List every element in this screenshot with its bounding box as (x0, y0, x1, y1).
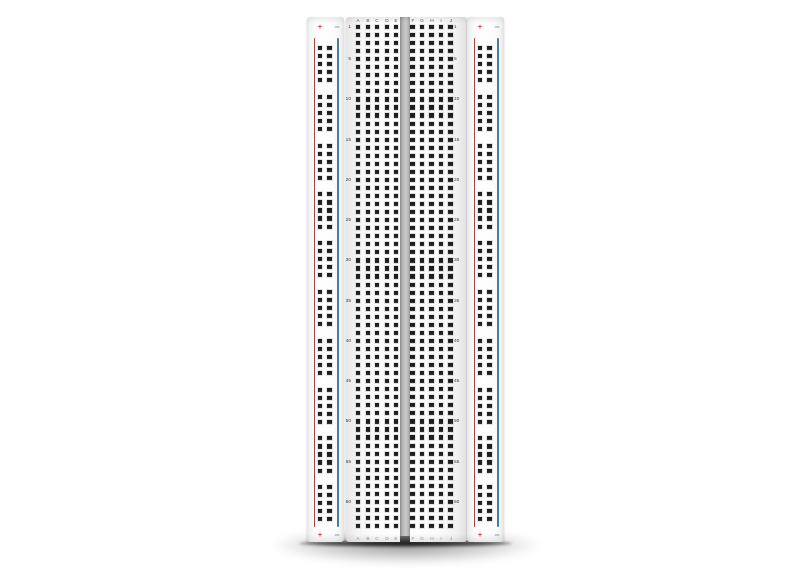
power-rail-hole (487, 436, 491, 440)
tie-point-hole (429, 154, 433, 158)
tie-point-hole (410, 234, 414, 238)
tie-point-hole (420, 57, 424, 61)
tie-point-hole (410, 146, 414, 150)
tie-point-hole (385, 105, 389, 109)
tie-point-hole (429, 41, 433, 45)
power-rail-hole (478, 420, 482, 424)
tie-point-hole (439, 363, 443, 367)
power-rail-hole (487, 70, 491, 74)
tie-point-hole (439, 154, 443, 158)
tie-point-hole (394, 476, 398, 480)
tie-point-hole (356, 65, 360, 69)
tie-point-hole (356, 315, 360, 319)
tie-point-hole (420, 307, 424, 311)
row-number-label: 40 (339, 338, 351, 344)
tie-point-hole (429, 105, 433, 109)
tie-point-hole (448, 347, 452, 351)
tie-point-hole (356, 355, 360, 359)
tie-point-hole (429, 210, 433, 214)
column-letter-label: G (418, 18, 425, 24)
tie-point-hole (410, 274, 414, 278)
power-rail-hole (327, 509, 331, 513)
tie-point-hole (429, 355, 433, 359)
tie-point-hole (356, 452, 360, 456)
tie-point-hole (429, 484, 433, 488)
column-letter-label: A (354, 536, 361, 542)
power-rail-hole (478, 257, 482, 261)
power-rail-hole (327, 290, 331, 294)
tie-point-hole (366, 387, 370, 391)
tie-point-hole (439, 49, 443, 53)
tie-point-hole (385, 323, 389, 327)
tie-point-hole (420, 339, 424, 343)
tie-point-hole (356, 186, 360, 190)
tie-point-hole (366, 468, 370, 472)
tie-point-hole (375, 57, 379, 61)
tie-point-hole (385, 516, 389, 520)
power-rail-hole (318, 517, 322, 521)
tie-point-hole (356, 113, 360, 117)
power-rail-hole (327, 485, 331, 489)
tie-point-hole (385, 57, 389, 61)
tie-point-hole (429, 524, 433, 528)
tie-point-hole (429, 460, 433, 464)
tie-point-hole (394, 524, 398, 528)
power-rail-hole (478, 144, 482, 148)
tie-point-hole (394, 395, 398, 399)
power-rail-hole (318, 160, 322, 164)
tie-point-hole (394, 170, 398, 174)
tie-point-hole (394, 444, 398, 448)
tie-point-hole (420, 234, 424, 238)
tie-point-hole (420, 411, 424, 415)
power-rail-hole (487, 355, 491, 359)
tie-point-hole (375, 476, 379, 480)
tie-point-hole (366, 250, 370, 254)
tie-point-hole (420, 444, 424, 448)
negative-sign-icon: − (491, 531, 502, 539)
tie-point-hole (375, 379, 379, 383)
positive-sign-icon: + (314, 531, 325, 539)
tie-point-hole (448, 226, 452, 230)
tie-point-hole (410, 508, 414, 512)
tie-point-hole (385, 97, 389, 101)
tie-point-hole (356, 242, 360, 246)
tie-point-hole (429, 492, 433, 496)
tie-point-hole (429, 363, 433, 367)
power-rail-hole (318, 111, 322, 115)
tie-point-hole (439, 242, 443, 246)
tie-point-hole (356, 307, 360, 311)
tie-point-hole (429, 57, 433, 61)
tie-point-hole (356, 347, 360, 351)
row-number-label: 40 (454, 338, 466, 344)
tie-point-hole (394, 347, 398, 351)
tie-point-hole (394, 250, 398, 254)
power-rail-hole (327, 420, 331, 424)
tie-point-hole (448, 105, 452, 109)
tie-point-hole (375, 492, 379, 496)
tie-point-hole (356, 363, 360, 367)
power-rail-hole (487, 339, 491, 343)
power-rail-hole (318, 152, 322, 156)
tie-point-hole (356, 258, 360, 262)
tie-point-hole (356, 484, 360, 488)
power-rail-hole (487, 306, 491, 310)
negative-sign-icon: − (491, 23, 502, 31)
row-number-label: 45 (454, 378, 466, 384)
power-rail-hole (487, 444, 491, 448)
power-rail-hole (487, 241, 491, 245)
tie-point-hole (394, 492, 398, 496)
tie-point-hole (429, 258, 433, 262)
tie-point-hole (375, 194, 379, 198)
tie-point-hole (429, 113, 433, 117)
power-rail-hole (318, 119, 322, 123)
tie-point-hole (394, 379, 398, 383)
tie-point-hole (356, 97, 360, 101)
tie-point-hole (420, 162, 424, 166)
tie-point-hole (420, 89, 424, 93)
tie-point-hole (420, 468, 424, 472)
tie-point-hole (366, 516, 370, 520)
power-rail-hole (478, 46, 482, 50)
tie-point-hole (448, 468, 452, 472)
power-rail-hole (327, 225, 331, 229)
tie-point-hole (366, 323, 370, 327)
tie-point-hole (375, 283, 379, 287)
tie-point-hole (356, 33, 360, 37)
power-rail-hole (478, 192, 482, 196)
tie-point-hole (410, 226, 414, 230)
power-rail-hole (478, 249, 482, 253)
row-number-label: 60 (454, 499, 466, 505)
tie-point-hole (448, 81, 452, 85)
tie-point-hole (394, 138, 398, 142)
tie-point-hole (448, 379, 452, 383)
power-rail-hole (318, 420, 322, 424)
power-rail-hole (327, 54, 331, 58)
tie-point-hole (448, 508, 452, 512)
tie-point-hole (394, 331, 398, 335)
power-rail-hole (487, 249, 491, 253)
tie-point-hole (366, 258, 370, 262)
tie-point-hole (420, 363, 424, 367)
tie-point-hole (366, 444, 370, 448)
tie-point-hole (385, 81, 389, 85)
power-rail-hole (327, 168, 331, 172)
column-letter-label: E (393, 536, 400, 542)
tie-point-hole (394, 460, 398, 464)
tie-point-hole (366, 524, 370, 528)
tie-point-hole (394, 323, 398, 327)
tie-point-hole (356, 492, 360, 496)
tie-point-hole (420, 323, 424, 327)
tie-point-hole (420, 81, 424, 85)
tie-point-hole (385, 162, 389, 166)
tie-point-hole (385, 210, 389, 214)
tie-point-hole (429, 202, 433, 206)
power-rail-hole (478, 95, 482, 99)
tie-point-hole (410, 186, 414, 190)
tie-point-hole (366, 508, 370, 512)
power-rail-hole (478, 412, 482, 416)
tie-point-hole (448, 258, 452, 262)
tie-point-hole (439, 210, 443, 214)
tie-point-hole (410, 81, 414, 85)
tie-point-hole (420, 105, 424, 109)
power-rail-hole (318, 298, 322, 302)
tie-point-hole (385, 468, 389, 472)
power-rail-hole (478, 371, 482, 375)
tie-point-hole (366, 178, 370, 182)
tie-point-hole (448, 444, 452, 448)
tie-point-hole (439, 299, 443, 303)
column-letter-label: D (383, 18, 390, 24)
tie-point-hole (356, 387, 360, 391)
tie-point-hole (448, 371, 452, 375)
power-rail-hole (478, 127, 482, 131)
power-rail-hole (487, 152, 491, 156)
tie-point-hole (429, 307, 433, 311)
tie-point-hole (375, 427, 379, 431)
tie-point-hole (394, 162, 398, 166)
tie-point-hole (385, 355, 389, 359)
power-rail-hole (318, 225, 322, 229)
tie-point-hole (366, 283, 370, 287)
tie-point-hole (385, 315, 389, 319)
tie-point-hole (439, 250, 443, 254)
column-letter-label: B (364, 18, 371, 24)
power-rail-hole (478, 152, 482, 156)
tie-point-hole (429, 73, 433, 77)
tie-point-hole (366, 355, 370, 359)
tie-point-hole (410, 323, 414, 327)
tie-point-hole (420, 242, 424, 246)
tie-point-hole (385, 387, 389, 391)
tie-point-hole (385, 170, 389, 174)
tie-point-hole (439, 65, 443, 69)
power-rail-hole (478, 160, 482, 164)
tie-point-hole (394, 242, 398, 246)
row-number-label: 35 (454, 298, 466, 304)
power-rail-hole (327, 257, 331, 261)
tie-point-hole (448, 387, 452, 391)
tie-point-hole (385, 154, 389, 158)
tie-point-hole (366, 97, 370, 101)
tie-point-hole (448, 476, 452, 480)
tie-point-hole (366, 194, 370, 198)
tie-point-hole (439, 274, 443, 278)
tie-point-hole (448, 492, 452, 496)
tie-point-hole (394, 516, 398, 520)
tie-point-hole (410, 210, 414, 214)
tie-point-hole (448, 146, 452, 150)
tie-point-hole (394, 234, 398, 238)
tie-point-hole (385, 427, 389, 431)
tie-point-hole (410, 194, 414, 198)
power-rail-hole (318, 144, 322, 148)
tie-point-hole (410, 122, 414, 126)
power-rail-hole (478, 298, 482, 302)
power-rail-hole (487, 168, 491, 172)
power-rail-hole (327, 396, 331, 400)
power-rail-hole (487, 363, 491, 367)
tie-point-hole (429, 427, 433, 431)
tie-point-hole (385, 435, 389, 439)
tie-point-hole (439, 323, 443, 327)
tie-point-hole (439, 41, 443, 45)
row-number-label: 15 (339, 137, 351, 143)
tie-point-hole (410, 178, 414, 182)
tie-point-hole (410, 355, 414, 359)
tie-point-hole (375, 508, 379, 512)
tie-point-hole (410, 138, 414, 142)
tie-point-hole (420, 194, 424, 198)
tie-point-hole (366, 395, 370, 399)
power-rail-hole (318, 509, 322, 513)
tie-point-hole (356, 57, 360, 61)
column-letter-label: C (374, 536, 381, 542)
tie-point-hole (410, 242, 414, 246)
tie-point-hole (375, 524, 379, 528)
tie-point-hole (448, 25, 452, 29)
power-rail-hole (318, 460, 322, 464)
power-rail-hole (478, 168, 482, 172)
power-rail-hole (487, 298, 491, 302)
tie-point-hole (385, 460, 389, 464)
tie-point-hole (420, 65, 424, 69)
tie-point-hole (420, 395, 424, 399)
tie-point-hole (448, 162, 452, 166)
power-rail-hole (478, 396, 482, 400)
power-rail-hole (487, 452, 491, 456)
tie-point-hole (394, 186, 398, 190)
power-rail-hole (318, 78, 322, 82)
tie-point-hole (410, 57, 414, 61)
tie-point-hole (375, 323, 379, 327)
tie-point-hole (356, 154, 360, 158)
tie-point-hole (448, 395, 452, 399)
tie-point-hole (385, 339, 389, 343)
power-rail-hole (487, 257, 491, 261)
tie-point-hole (448, 250, 452, 254)
power-rail-hole (487, 347, 491, 351)
tie-point-hole (356, 234, 360, 238)
power-rail-hole (478, 111, 482, 115)
tie-point-hole (420, 113, 424, 117)
tie-point-hole (385, 274, 389, 278)
tie-point-hole (375, 387, 379, 391)
tie-point-hole (375, 218, 379, 222)
power-rail-hole (318, 216, 322, 220)
row-number-label: 1 (454, 24, 466, 30)
tie-point-hole (385, 347, 389, 351)
power-rail-hole (478, 444, 482, 448)
tie-point-hole (410, 105, 414, 109)
tie-point-hole (385, 89, 389, 93)
power-rail-hole (318, 70, 322, 74)
row-number-label: 30 (454, 257, 466, 263)
tie-point-hole (410, 89, 414, 93)
power-rail-hole (327, 363, 331, 367)
tie-point-hole (439, 387, 443, 391)
power-rail-hole (487, 216, 491, 220)
tie-point-hole (375, 435, 379, 439)
power-rail-hole (478, 176, 482, 180)
tie-point-hole (448, 130, 452, 134)
tie-point-hole (366, 130, 370, 134)
tie-point-hole (394, 122, 398, 126)
tie-point-hole (448, 355, 452, 359)
tie-point-hole (439, 500, 443, 504)
tie-point-hole (439, 226, 443, 230)
power-rail-hole (318, 265, 322, 269)
power-rail-hole (327, 404, 331, 408)
tie-point-hole (448, 138, 452, 142)
tie-point-hole (439, 371, 443, 375)
tie-point-hole (375, 331, 379, 335)
tie-point-hole (356, 49, 360, 53)
tie-point-hole (394, 484, 398, 488)
power-rail-hole (478, 322, 482, 326)
channel-end-notch (400, 536, 410, 542)
power-rail-hole (327, 62, 331, 66)
power-rail-hole (318, 322, 322, 326)
tie-point-hole (366, 331, 370, 335)
tie-point-hole (394, 307, 398, 311)
tie-point-hole (394, 218, 398, 222)
tie-point-hole (385, 379, 389, 383)
tie-point-hole (410, 283, 414, 287)
tie-point-hole (448, 516, 452, 520)
power-rail-hole (478, 517, 482, 521)
power-rail-hole (318, 54, 322, 58)
tie-point-hole (356, 331, 360, 335)
power-rail-hole (318, 306, 322, 310)
tie-point-hole (356, 403, 360, 407)
tie-point-hole (429, 65, 433, 69)
column-letter-label: F (409, 18, 416, 24)
tie-point-hole (375, 170, 379, 174)
tie-point-hole (420, 49, 424, 53)
tie-point-hole (356, 178, 360, 182)
power-rail-hole (327, 314, 331, 318)
tie-point-hole (366, 403, 370, 407)
tie-point-hole (385, 500, 389, 504)
tie-point-hole (375, 162, 379, 166)
power-rail-hole (327, 265, 331, 269)
tie-point-hole (385, 202, 389, 206)
tie-point-hole (448, 283, 452, 287)
power-rail-hole (487, 95, 491, 99)
tie-point-hole (410, 154, 414, 158)
tie-point-hole (420, 299, 424, 303)
tie-point-hole (429, 49, 433, 53)
tie-point-hole (385, 492, 389, 496)
tie-point-hole (356, 41, 360, 45)
tie-point-hole (420, 154, 424, 158)
power-rail-hole (487, 501, 491, 505)
tie-point-hole (394, 468, 398, 472)
tie-point-hole (366, 186, 370, 190)
tie-point-hole (448, 210, 452, 214)
tie-point-hole (366, 266, 370, 270)
power-rail-hole (487, 119, 491, 123)
tie-point-hole (366, 113, 370, 117)
tie-point-hole (429, 331, 433, 335)
tie-point-hole (366, 274, 370, 278)
